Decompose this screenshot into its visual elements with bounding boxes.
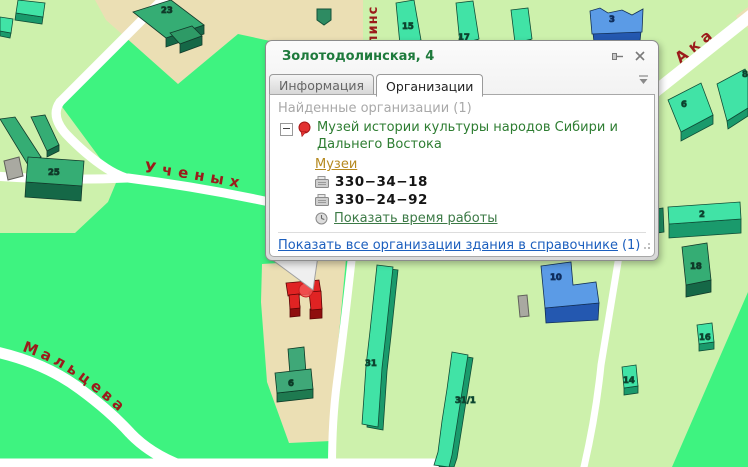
building-gray-left[interactable]	[4, 157, 23, 180]
organization-name: Музей истории культуры народов Сибири и …	[317, 119, 647, 153]
chevron-down-icon	[638, 75, 649, 85]
building-label: 2	[699, 210, 705, 220]
phone-row: 330−34−18	[315, 173, 648, 191]
show-all-organizations-link[interactable]: Показать все организации здания в справо…	[278, 238, 618, 253]
tab-organizations[interactable]: Организации	[376, 74, 483, 97]
building-label: 23	[161, 6, 173, 16]
building-label: 18	[690, 262, 702, 272]
building-label: 6	[288, 379, 294, 389]
footer-row: Показать все организации здания в справо…	[278, 238, 648, 253]
building-label: 10	[550, 273, 562, 283]
close-button[interactable]	[631, 49, 648, 64]
building-gray-right[interactable]	[518, 295, 529, 317]
building-label: 14	[623, 376, 635, 386]
resize-grip[interactable]	[641, 235, 651, 254]
collapse-expander[interactable]	[280, 123, 293, 136]
popup-tabs: Информация Организации	[266, 69, 658, 96]
phone-icon	[315, 176, 329, 188]
pin-icon	[611, 50, 624, 63]
resize-grip-icon	[641, 240, 651, 250]
building-14[interactable]: 14	[622, 365, 638, 395]
building-18[interactable]: 18	[682, 243, 711, 297]
building-label: 16	[699, 333, 711, 343]
phone-icon	[315, 194, 329, 206]
category-link[interactable]: Музеи	[315, 156, 357, 173]
organization-row: Музей истории культуры народов Сибири и …	[278, 119, 648, 153]
building-2[interactable]: 2	[656, 202, 741, 238]
tab-information[interactable]: Информация	[269, 74, 374, 96]
close-icon	[635, 51, 645, 61]
phone-row: 330−24−92	[315, 191, 648, 209]
divider	[278, 232, 646, 233]
tab-overflow-button[interactable]	[638, 70, 649, 89]
found-organizations-header: Найденные организации (1)	[278, 101, 648, 116]
map-app-window: 23 15 17 3 6 8 2 18	[0, 0, 748, 467]
popup-titlebar: Золотодолинская, 4	[266, 41, 658, 69]
building-3[interactable]: 3	[590, 8, 643, 42]
pin-button[interactable]	[609, 49, 626, 64]
building-label: 15	[402, 22, 414, 32]
working-hours-row: Показать время работы	[315, 209, 648, 227]
popup-title: Золотодолинская, 4	[282, 49, 604, 64]
building-label: 31	[365, 359, 377, 369]
phone-number: 330−24−92	[335, 192, 428, 208]
organization-details: Музеи 330−34−18 330−24−92	[315, 153, 648, 227]
building-16[interactable]: 16	[697, 323, 714, 351]
organizations-count: (1)	[622, 238, 640, 253]
building-label: 31/1	[455, 396, 476, 406]
show-working-hours-link[interactable]: Показать время работы	[334, 211, 498, 226]
org-marker-icon[interactable]	[297, 121, 312, 141]
building-label: 6	[681, 100, 687, 110]
clock-icon	[315, 212, 328, 225]
building-label: 25	[48, 168, 60, 178]
building-label: 8	[742, 70, 748, 80]
building-topleft-1[interactable]	[15, 0, 45, 24]
street-label-maltseva: Мальцева	[20, 338, 130, 418]
phone-number: 330−34−18	[335, 174, 428, 190]
popup-content: Найденные организации (1) Музей истории …	[269, 94, 655, 257]
building-label: 3	[609, 15, 615, 25]
balloon-popup: Золотодолинская, 4 Информация Организаци…	[265, 40, 659, 261]
